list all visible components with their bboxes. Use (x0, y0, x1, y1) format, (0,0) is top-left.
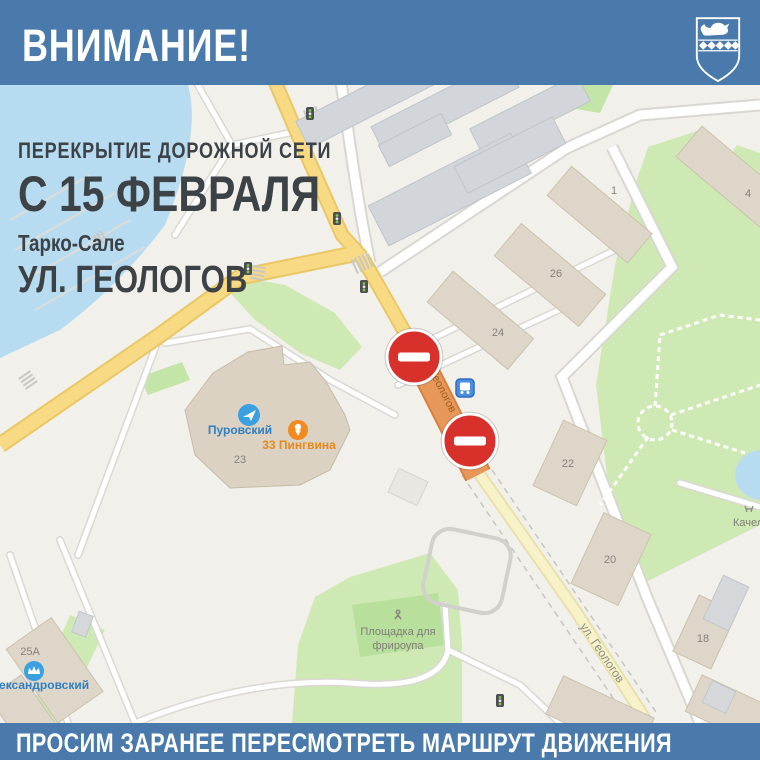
poi-alexandrovsky-label: Александровский (0, 678, 89, 692)
svg-text:фрироупа: фрироупа (373, 640, 425, 652)
bus-stop-icon (456, 379, 474, 397)
building-number: 24 (492, 327, 504, 339)
bottom-banner: ПРОСИМ ЗАРАНЕЕ ПЕРЕСМОТРЕТЬ МАРШРУТ ДВИЖ… (0, 723, 760, 760)
building-number: 1 (611, 185, 617, 197)
building-number: 18 (697, 633, 709, 645)
closure-date: С 15 ФЕВРАЛЯ (18, 165, 331, 223)
building-number: 26 (550, 268, 562, 280)
poi-penguins-label: 33 Пингвина (262, 438, 336, 452)
building-number: 20 (604, 554, 616, 566)
coat-of-arms-icon (690, 14, 746, 86)
building-number: 22 (562, 458, 574, 470)
building-number: 25А (20, 646, 40, 658)
svg-text:Качели: Качели (733, 517, 760, 529)
fox-figure (701, 23, 730, 36)
top-banner: ВНИМАНИЕ! (0, 0, 760, 85)
building-number: 23 (234, 454, 246, 466)
closure-street: УЛ. ГЕОЛОГОВ (18, 259, 331, 302)
no-entry-sign-south (441, 412, 499, 470)
poi-purovsky-label: Пуровский (208, 423, 272, 437)
svg-text:Площадка для: Площадка для (360, 626, 435, 638)
bottom-banner-text: ПРОСИМ ЗАРАНЕЕ ПЕРЕСМОТРЕТЬ МАРШРУТ ДВИЖ… (16, 728, 672, 759)
closure-town: Тарко-Сале (18, 230, 331, 257)
attention-title: ВНИМАНИЕ! (22, 20, 251, 72)
closure-info-block: ПЕРЕКРЫТИЕ ДОРОЖНОЙ СЕТИ С 15 ФЕВРАЛЯ Та… (18, 138, 400, 302)
closure-subtitle: ПЕРЕКРЫТИЕ ДОРОЖНОЙ СЕТИ (18, 138, 331, 164)
ornament-diamonds (699, 41, 740, 50)
building-number: 4 (745, 188, 751, 200)
road-closure-poster: 1 4 26 24 22 20 18 23 25А ул. Геологов у… (0, 0, 760, 760)
no-entry-sign-north (385, 328, 443, 386)
